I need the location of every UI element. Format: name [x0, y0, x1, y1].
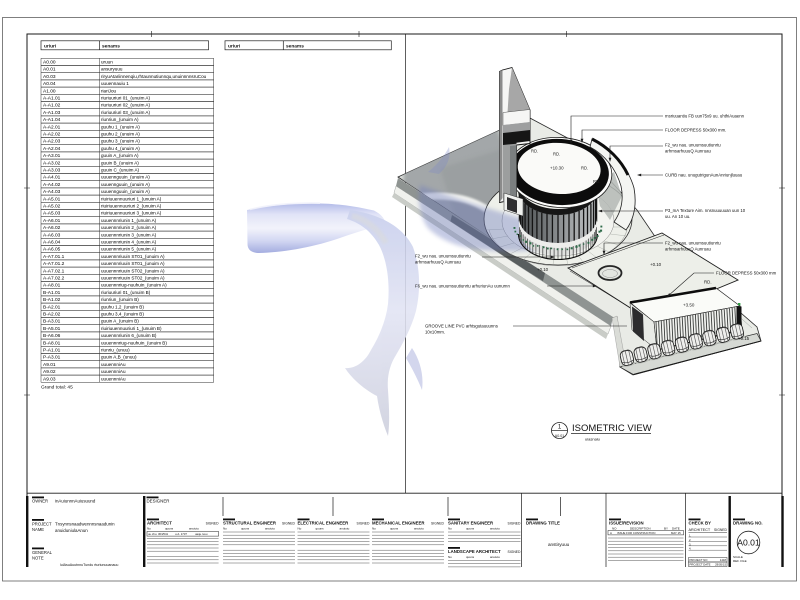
svg-text:B-A5.01: B-A5.01: [43, 326, 61, 332]
svg-text:luiAsuAuutnnuTundu rturiunuuan: luiAsuAuutnnuTundu rturiunuuanauu: [60, 563, 118, 567]
svg-text:DESIGNER: DESIGNER: [147, 499, 170, 504]
svg-text:uuuennnriunin 4_(unuim A): uuuennnriunin 4_(unuim A): [101, 240, 157, 245]
svg-text:A9.03: A9.03: [43, 376, 56, 382]
svg-text:riryuAtariinnenqiu,rhtaunnutiu: riryuAtariinnenqiu,rhtaunnutiunnqu,unuin…: [101, 74, 207, 79]
svg-text:P3_mA Texture Aim. nnsnuuuuuan: P3_mA Texture Aim. nnsnuuuuuan uun 10: [665, 208, 746, 213]
svg-text:quuns: quuns: [466, 555, 475, 559]
svg-text:RD.: RD.: [704, 280, 712, 285]
svg-text:msriuuantiu FB uun75x9 uu. uht: msriuuantiu FB uun75x9 uu. uhthiAuaenn: [665, 114, 745, 119]
svg-text:guuin B_(unuim A): guuin B_(unuim A): [101, 160, 139, 165]
svg-text:uuuennguuin_(unuim A): uuuennguuin_(unuim A): [101, 182, 150, 187]
svg-text:REF. FILE: REF. FILE: [733, 559, 747, 563]
svg-text:uu.chu. 30/2541: uu.chu. 30/2541: [148, 532, 169, 536]
svg-text:A-A6.03: A-A6.03: [43, 232, 61, 238]
svg-text:anuiutu: anuiutu: [340, 527, 350, 531]
svg-text:A-A2.03: A-A2.03: [43, 139, 61, 145]
svg-text:F2_wu nau. unuumsuutiunrtu: F2_wu nau. unuumsuutiunrtu: [415, 254, 471, 259]
svg-text:guuin A_(unuim A): guuin A_(unuim A): [101, 153, 139, 158]
svg-text:A-A5.01: A-A5.01: [43, 196, 61, 202]
svg-text:A-A2.01: A-A2.01: [43, 124, 61, 130]
svg-text:A-A7.02.1: A-A7.02.1: [43, 268, 65, 274]
svg-text:SIGNED: SIGNED: [714, 528, 728, 532]
svg-text:riuiriuuennuuriuri 1_(unuim B): riuiriuuennuuriuri 1_(unuim B): [101, 326, 162, 331]
svg-text:arhmsarhuuuQ Aunruau: arhmsarhuuuQ Aunruau: [665, 149, 711, 154]
svg-text:STRUCTURAL ENGINEER: STRUCTURAL ENGINEER: [223, 521, 277, 526]
svg-text:A-A4.01: A-A4.01: [43, 175, 61, 181]
svg-text:quuns: quuns: [466, 527, 475, 531]
svg-text:A-A3.02: A-A3.02: [43, 160, 61, 166]
svg-text:uuuennnriunin 6_(unuim B): uuuennnriunin 6_(unuim B): [101, 333, 157, 338]
svg-text:guuhu 2_(unuim A): guuhu 2_(unuim A): [101, 132, 140, 137]
svg-text:A1.00: A1.00: [43, 88, 56, 94]
svg-text:FLOOR DEPRESS 50x300 mm.: FLOOR DEPRESS 50x300 mm.: [665, 128, 726, 133]
svg-text:A-A1.02: A-A1.02: [43, 103, 61, 109]
svg-text:NAME: NAME: [32, 527, 44, 532]
svg-text:FLOOR DEPRESS 50x300 mm: FLOOR DEPRESS 50x300 mm: [716, 271, 777, 276]
svg-text:GROOVE LINE PVC arhtsgutauuunn: GROOVE LINE PVC arhtsgutauuunns: [425, 324, 498, 329]
svg-text:MECHANICAL ENGINEER: MECHANICAL ENGINEER: [372, 521, 425, 526]
svg-text:uriuri: uriuri: [228, 43, 240, 49]
svg-text:A-A7.01.2: A-A7.01.2: [43, 261, 65, 267]
svg-text:riuriuuriuri 03_(unuim A): riuriuuriuri 03_(unuim A): [101, 110, 150, 115]
svg-text:B-A1.01: B-A1.01: [43, 290, 61, 296]
svg-text:29/05/15: 29/05/15: [715, 563, 726, 567]
svg-text:DATE: DATE: [672, 527, 680, 531]
svg-text:RD.: RD.: [553, 152, 560, 157]
svg-text:uuuennnriuuin ST01_(unuim A): uuuennnriuuin ST01_(unuim A): [101, 254, 165, 259]
svg-text:F2_wu nau. unuumsuutiunrtu: F2_wu nau. unuumsuutiunrtu: [665, 143, 721, 148]
svg-text:No: No: [372, 527, 376, 531]
svg-text:A-A4.02: A-A4.02: [43, 182, 61, 188]
svg-text:anuiutu: anuiutu: [490, 527, 500, 531]
svg-text:SIGNED: SIGNED: [431, 522, 445, 526]
svg-text:10x10mm.: 10x10mm.: [425, 330, 445, 335]
svg-text:CURB nau. unugutrigunAunAnriun: CURB nau. unugutrigunAunAnriunjluuau: [665, 173, 743, 178]
svg-text:A-A7.02.2: A-A7.02.2: [43, 276, 65, 282]
svg-text:No: No: [147, 527, 151, 531]
svg-text:guuin A,B_(unuu): guuin A,B_(unuu): [101, 355, 137, 360]
svg-text:MAY 15: MAY 15: [671, 531, 681, 535]
svg-text:uuuennnriunin 2_(unuim A): uuuennnriunin 2_(unuim A): [101, 225, 157, 230]
svg-text:inAuiunnnAuiusuund: inAuiunnnAuiusuund: [55, 499, 96, 504]
svg-text:anuiutu: anuiutu: [490, 555, 500, 559]
svg-text:A0.03: A0.03: [43, 74, 56, 80]
svg-text:Grand total: 45: Grand total: 45: [41, 384, 73, 390]
svg-text:ARCHITECT: ARCHITECT: [689, 528, 711, 532]
svg-text:uuuennnriunin 5_(unuim A): uuuennnriunin 5_(unuim A): [101, 247, 157, 252]
svg-text:guuhu 4_(unuim A): guuhu 4_(unuim A): [101, 146, 140, 151]
svg-text:A-A5.03: A-A5.03: [43, 211, 61, 217]
svg-text:anstiryuuu: anstiryuuu: [548, 542, 570, 547]
svg-text:ELECTRICAL ENGINEER: ELECTRICAL ENGINEER: [298, 521, 350, 526]
svg-text:senams: senams: [286, 44, 304, 49]
svg-text:anuiutu: anuiutu: [414, 527, 424, 531]
svg-text:riuriuuriuri 02_(unuim A): riuriuuriuri 02_(unuim A): [101, 103, 150, 108]
svg-text:A-A1.03: A-A1.03: [43, 110, 61, 116]
svg-text:A-A3.03: A-A3.03: [43, 168, 61, 174]
svg-text:guuhu 1,2_(unuim B): guuhu 1,2_(unuim B): [101, 304, 144, 309]
svg-text:riariJou: riariJou: [101, 88, 117, 93]
svg-text:RD.: RD.: [531, 149, 538, 154]
svg-text:ISSUE/REVISION: ISSUE/REVISION: [609, 521, 644, 526]
svg-text:uruun: uruun: [101, 60, 113, 65]
svg-text:guuhu 1_(unuim A): guuhu 1_(unuim A): [101, 124, 140, 129]
svg-text:uuuennguuin_(unuim A): uuuennguuin_(unuim A): [101, 175, 150, 180]
svg-text:B-A8.01: B-A8.01: [43, 340, 61, 346]
svg-text:SIGNED: SIGNED: [282, 522, 296, 526]
svg-text:B-A2.02: B-A2.02: [43, 312, 61, 318]
svg-text:uuuennnriug-nuuhuin_(unuim A): uuuennnriug-nuuhuin_(unuim A): [101, 283, 167, 288]
svg-text:A-A3.01: A-A3.01: [43, 153, 61, 159]
svg-text:A-A6.04: A-A6.04: [43, 240, 61, 246]
svg-text:A-A6.02: A-A6.02: [43, 225, 61, 231]
svg-text:SIGNED: SIGNED: [357, 522, 371, 526]
svg-text:P-A1.01: P-A1.01: [43, 348, 61, 354]
svg-text:PROJECT: PROJECT: [32, 522, 52, 527]
svg-text:uiasnaiu: uiasnaiu: [585, 437, 600, 442]
svg-text:uuuennnriuuin ST01_(unuim A): uuuennnriuuin ST01_(unuim A): [101, 261, 165, 266]
svg-text:arhmsarhuuuQ Aunruau: arhmsarhuuuQ Aunruau: [665, 247, 711, 252]
svg-text:riuriuuriuri 01_(unuim B): riuriuuriuri 01_(unuim B): [101, 290, 151, 295]
svg-text:RD.: RD.: [593, 179, 600, 184]
svg-text:guuin A_(unuim B): guuin A_(unuim B): [101, 319, 139, 324]
svg-text:guuhu 3_(unuim A): guuhu 3_(unuim A): [101, 139, 140, 144]
svg-text:uriuri: uriuri: [44, 43, 56, 49]
svg-text:uuuennnriuuin ST02_(unuim A): uuuennnriuuin ST02_(unuim A): [101, 276, 165, 281]
svg-text:No: No: [448, 527, 452, 531]
svg-text:BY: BY: [664, 527, 668, 531]
svg-text:riunriu_(unuu): riunriu_(unuu): [101, 348, 130, 353]
svg-text:uuuennniAu: uuuennniAu: [101, 369, 126, 374]
svg-text:A0.04: A0.04: [43, 81, 56, 87]
svg-text:B-A3.01: B-A3.01: [43, 319, 61, 325]
svg-text:OWNER: OWNER: [32, 499, 48, 504]
svg-text:B-A2.01: B-A2.01: [43, 304, 61, 310]
svg-text:NOTE: NOTE: [32, 556, 44, 561]
svg-text:+0.10: +0.10: [537, 267, 549, 272]
svg-text:A-A4.03: A-A4.03: [43, 189, 61, 195]
svg-text:u.A. 1737: u.A. 1737: [175, 532, 187, 536]
svg-text:ansuryuuu: ansuryuuu: [101, 67, 123, 72]
svg-text:A9.02: A9.02: [43, 369, 56, 375]
svg-text:uuuennnriunin 3_(unuim A): uuuennnriunin 3_(unuim A): [101, 232, 157, 237]
svg-text:SIGNED: SIGNED: [206, 522, 220, 526]
svg-text:+3.50: +3.50: [683, 303, 695, 308]
svg-text:No: No: [298, 527, 302, 531]
svg-text:A-A8.01: A-A8.01: [43, 283, 61, 289]
svg-text:B-A6.06: B-A6.06: [43, 333, 61, 339]
svg-text:A-A6.05: A-A6.05: [43, 247, 61, 253]
svg-text:arhmsarhuuuQ Aunruau: arhmsarhuuuQ Aunruau: [415, 260, 461, 265]
svg-text:uuuennniAu: uuuennniAu: [101, 362, 126, 367]
svg-text:A-A1.01: A-A1.01: [43, 96, 61, 102]
svg-text:B-A1.02: B-A1.02: [43, 297, 61, 303]
svg-text:quuns: quuns: [165, 527, 174, 531]
svg-text:A9.01: A9.01: [43, 362, 56, 368]
svg-text:PROJECT DATE: PROJECT DATE: [690, 563, 711, 567]
svg-text:ISSUE FOR CONSTRUCTION: ISSUE FOR CONSTRUCTION: [617, 531, 655, 535]
svg-text:uuuennnriunin 1_(unuim A): uuuennnriunin 1_(unuim A): [101, 218, 157, 223]
svg-text:riuriuuriuri 01_(unuim A): riuriuuriuri 01_(unuim A): [101, 96, 150, 101]
svg-text:riuiriuuennuuriuri 1_(unuim A): riuiriuuennuuriuri 1_(unuim A): [101, 196, 162, 201]
svg-text:uuuennguuin_(unuim A): uuuennguuin_(unuim A): [101, 189, 150, 194]
svg-text:SIGNED: SIGNED: [508, 550, 522, 554]
svg-text:riuiriuuennuuriuri 2_(unuim A): riuiriuuennuuriuri 2_(unuim A): [101, 204, 162, 209]
svg-text:SANITARY ENGINEER: SANITARY ENGINEER: [448, 521, 494, 526]
svg-text:anuiutu: anuiutu: [265, 527, 275, 531]
svg-text:F2_wu nau. unuumsuutiunrtu: F2_wu nau. unuumsuutiunrtu: [665, 241, 721, 246]
svg-text:+10.30: +10.30: [550, 166, 564, 171]
svg-text:guuin C_(unuim A): guuin C_(unuim A): [101, 168, 140, 173]
svg-text:A-A6.01: A-A6.01: [43, 218, 61, 224]
svg-text:anuiduniulaAnun: anuiduniulaAnun: [55, 528, 88, 533]
svg-text:DRAWING NO.: DRAWING NO.: [733, 521, 763, 526]
svg-text:anuiutu: anuiutu: [189, 527, 199, 531]
svg-text:guuhu 3,4_(unuim B): guuhu 3,4_(unuim B): [101, 312, 144, 317]
svg-text:senams: senams: [102, 44, 120, 49]
svg-text:DESCRIPTION: DESCRIPTION: [630, 527, 651, 531]
svg-text:riunriun_(unuim B): riunriun_(unuim B): [101, 297, 139, 302]
svg-text:A-A2.02: A-A2.02: [43, 132, 61, 138]
svg-text:PROJECT NO: PROJECT NO: [690, 558, 709, 562]
svg-text:ARCHITECT: ARCHITECT: [147, 521, 172, 526]
svg-text:P-A3.01: P-A3.01: [43, 355, 61, 361]
svg-text:uaqu./uuu: uaqu./uuu: [195, 532, 208, 536]
svg-text:A-A2.04: A-A2.04: [43, 146, 61, 152]
svg-text:uuuennniAu: uuuennniAu: [101, 376, 126, 381]
svg-text:GENERAL: GENERAL: [32, 550, 53, 555]
svg-text:quuns: quuns: [390, 527, 399, 531]
svg-text:A: A: [610, 531, 612, 535]
svg-text:quuns: quuns: [241, 527, 250, 531]
svg-text:SIGNED: SIGNED: [508, 522, 522, 526]
svg-text:riuiriuuennuuriuri 3_(unuim A): riuiriuuennuuriuri 3_(unuim A): [101, 211, 162, 216]
svg-text:NO: NO: [612, 527, 617, 531]
svg-text:DRAWING TITLE: DRAWING TITLE: [526, 521, 560, 526]
svg-text:A0.01: A0.01: [555, 434, 564, 438]
svg-text:riunriun_(unuim A): riunriun_(unuim A): [101, 117, 139, 122]
svg-text:1418: 1418: [720, 558, 727, 562]
svg-text:uuuennnriug-nuuhuin_(unuim B): uuuennnriug-nuuhuin_(unuim B): [101, 340, 167, 345]
svg-text:A0.01: A0.01: [43, 67, 56, 73]
svg-text:LANDSCAPE ARCHITECT: LANDSCAPE ARCHITECT: [448, 549, 501, 554]
svg-text:CHECK BY: CHECK BY: [689, 521, 712, 526]
svg-text:A-A1.04: A-A1.04: [43, 117, 61, 123]
svg-text:uuuennnriuuin ST02_(unuim A): uuuennnriuuin ST02_(unuim A): [101, 268, 165, 273]
svg-text:+0.10: +0.10: [650, 262, 662, 267]
svg-text:quuns: quuns: [316, 527, 325, 531]
svg-text:A0.00: A0.00: [43, 60, 56, 66]
svg-text:Tnsynnsnaadwennnsnaadunin: Tnsynnsnaadwennnsnaadunin: [55, 522, 115, 527]
svg-text:ISOMETRIC VIEW: ISOMETRIC VIEW: [572, 423, 652, 434]
svg-text:RD.: RD.: [581, 166, 588, 171]
svg-text:A-A7.01.1: A-A7.01.1: [43, 254, 65, 260]
svg-text:uuuennauiu 1: uuuennauiu 1: [101, 81, 129, 86]
svg-text:No: No: [448, 555, 452, 559]
svg-text:A-A5.02: A-A5.02: [43, 204, 61, 210]
svg-text:A0.01: A0.01: [737, 538, 760, 548]
svg-text:+0.15: +0.15: [738, 336, 750, 341]
svg-text:uu. An 10 uu.: uu. An 10 uu.: [665, 214, 690, 219]
svg-text:F6_wu nau. unuumsuutiunrtu arh: F6_wu nau. unuumsuutiunrtu arhuriunAu uu…: [415, 284, 510, 289]
svg-text:No: No: [223, 527, 227, 531]
